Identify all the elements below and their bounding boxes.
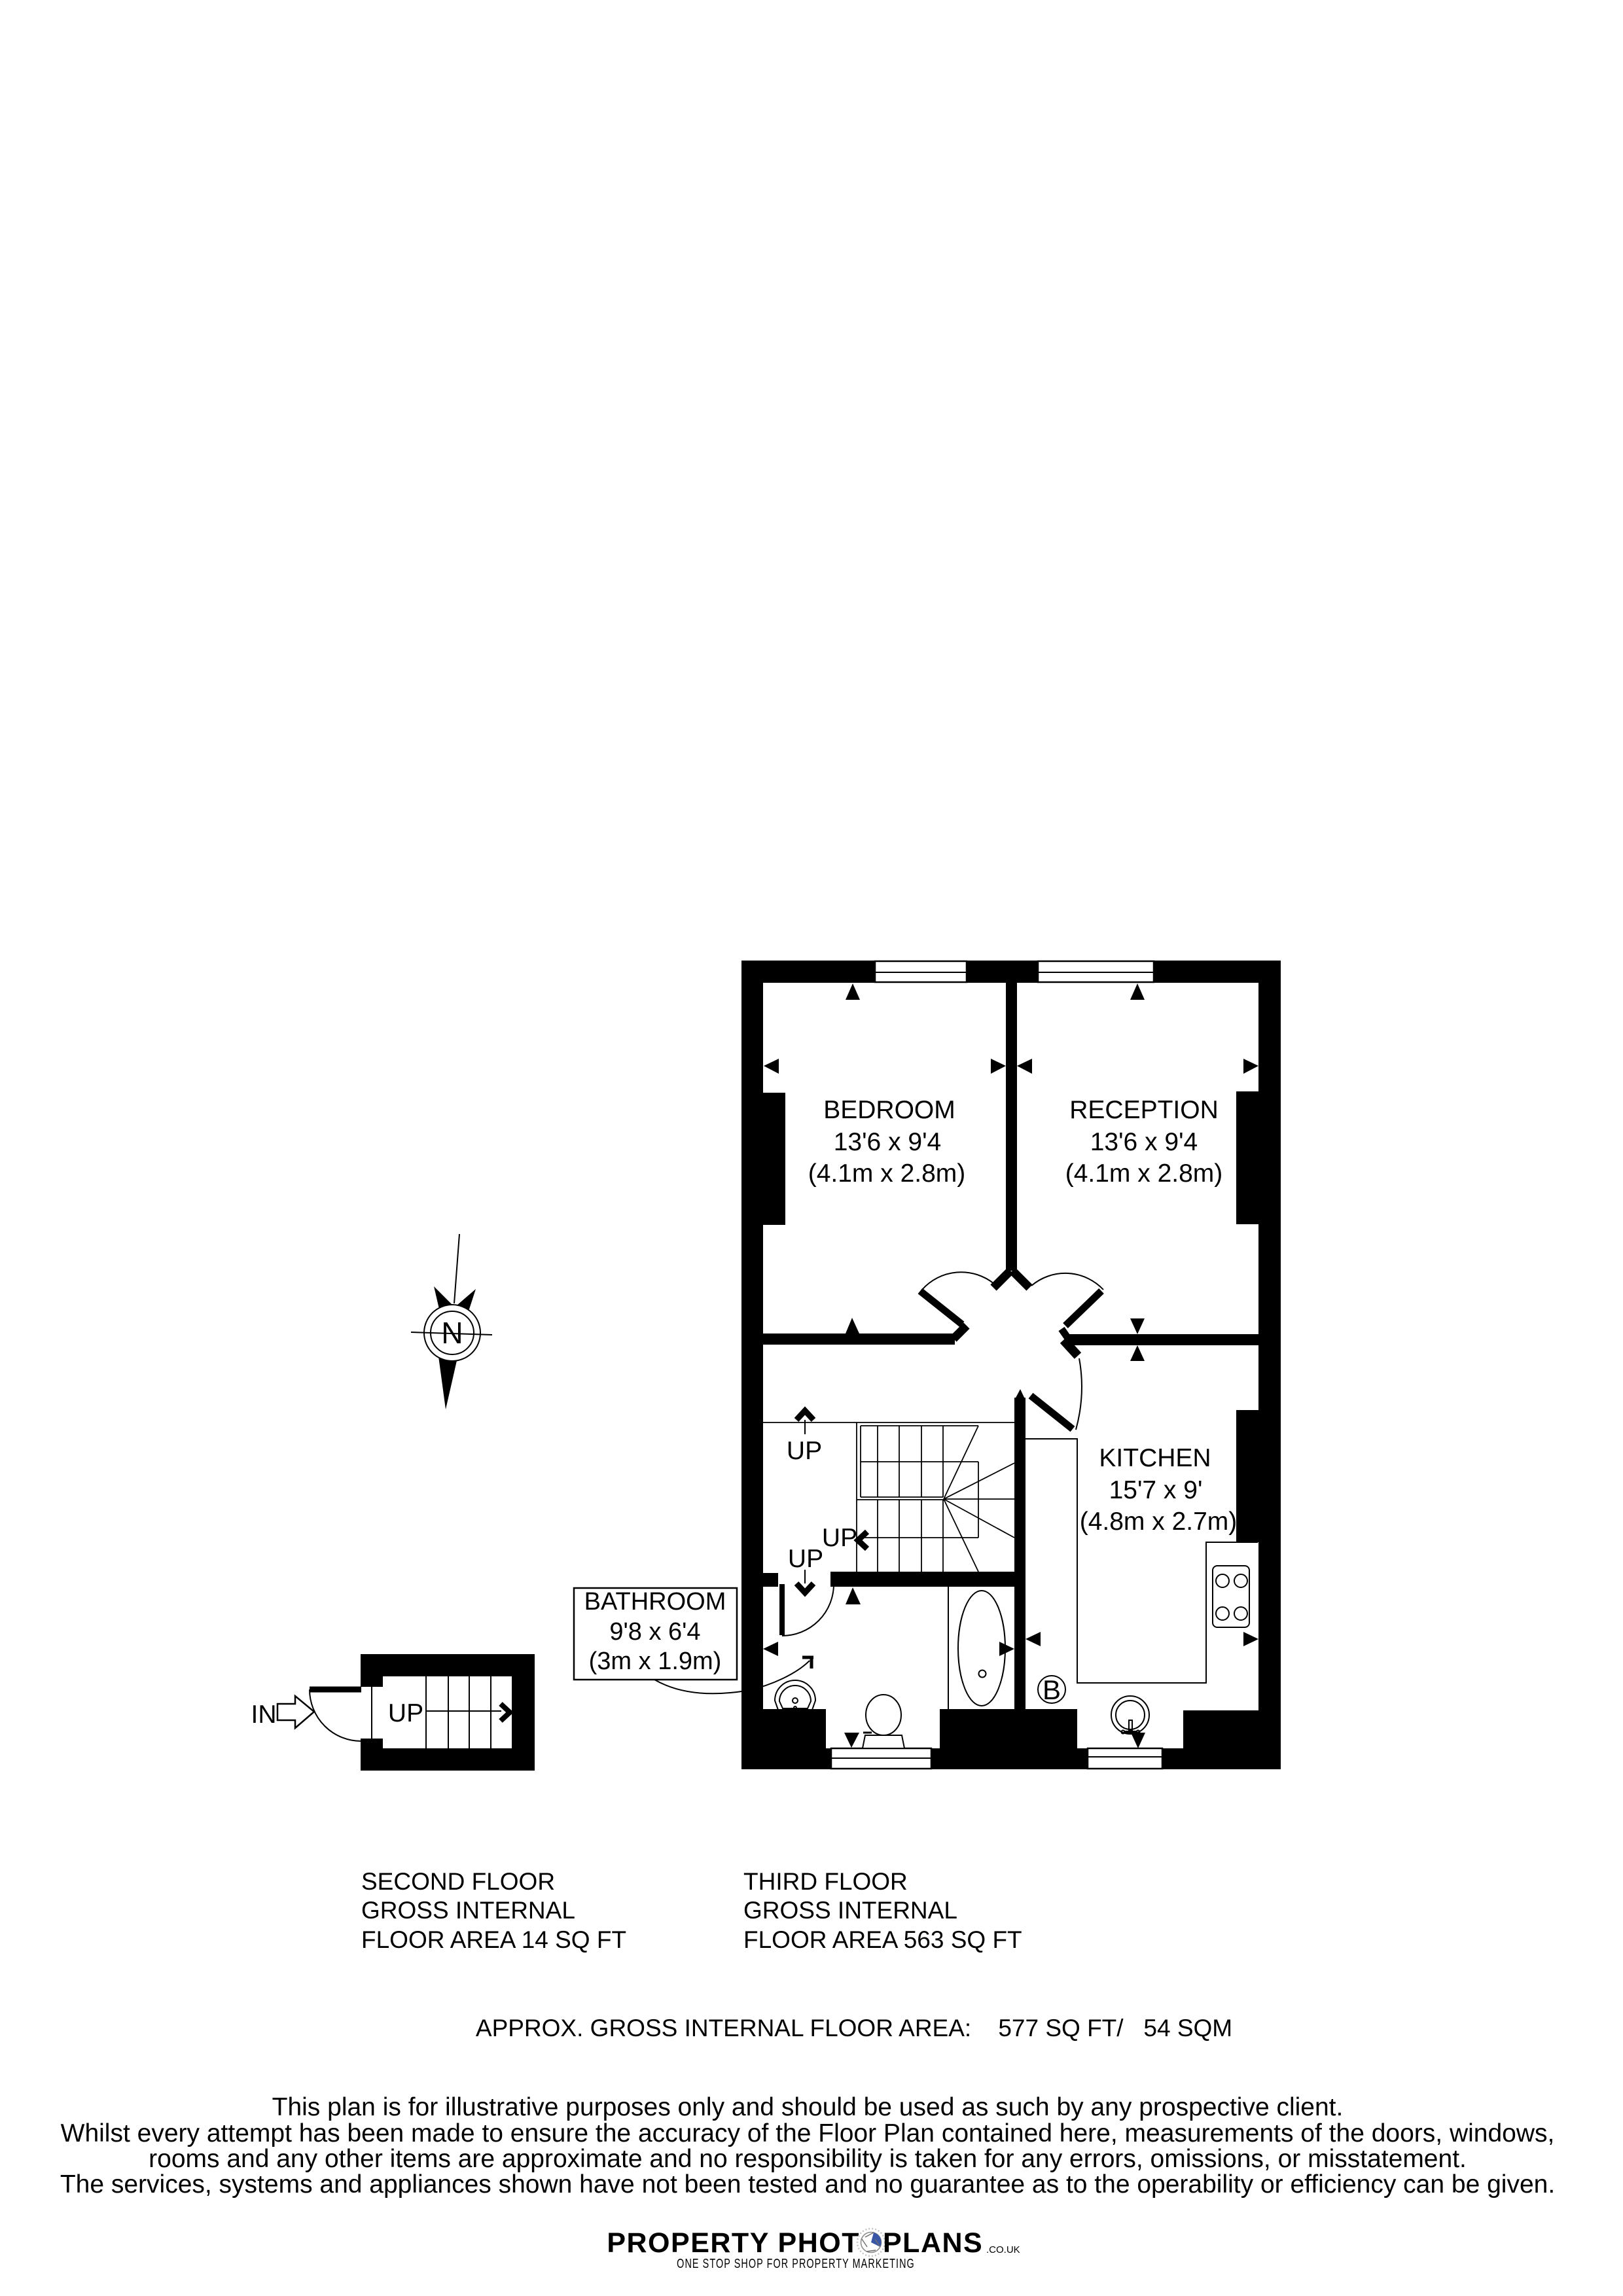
svg-text:BEDROOM: BEDROOM	[823, 1096, 955, 1124]
svg-text:rooms and any other items are: rooms and any other items are approximat…	[149, 2145, 1467, 2173]
svg-text:UP: UP	[788, 1545, 823, 1573]
svg-text:(4.1m x 2.8m): (4.1m x 2.8m)	[1065, 1159, 1223, 1188]
svg-text:Whilst every attempt has been: Whilst every attempt has been made to en…	[61, 2119, 1555, 2147]
svg-text:9'8 x 6'4: 9'8 x 6'4	[609, 1618, 700, 1646]
svg-text:FLOOR AREA 563 SQ FT: FLOOR AREA 563 SQ FT	[743, 1926, 1022, 1953]
svg-text:ONE STOP SHOP FOR PROPERTY MAR: ONE STOP SHOP FOR PROPERTY MARKETING	[677, 2256, 915, 2271]
svg-text:B: B	[1043, 1674, 1061, 1705]
svg-text:APPROX. GROSS INTERNAL FLOOR A: APPROX. GROSS INTERNAL FLOOR AREA: 577 S…	[476, 2015, 1232, 2041]
svg-text:The services, systems and appl: The services, systems and appliances sho…	[60, 2170, 1555, 2199]
svg-text:15'7 x 9': 15'7 x 9'	[1109, 1476, 1203, 1504]
svg-text:(4.1m x 2.8m): (4.1m x 2.8m)	[808, 1159, 966, 1188]
svg-text:FLOOR AREA 14 SQ FT: FLOOR AREA 14 SQ FT	[361, 1926, 626, 1953]
svg-text:SECOND FLOOR: SECOND FLOOR	[361, 1868, 555, 1895]
svg-text:.CO.UK: .CO.UK	[986, 2244, 1020, 2255]
svg-text:UP: UP	[388, 1699, 423, 1727]
svg-text:BATHROOM: BATHROOM	[584, 1588, 726, 1616]
svg-text:THIRD FLOOR: THIRD FLOOR	[743, 1868, 908, 1895]
svg-text:13'6 x 9'4: 13'6 x 9'4	[834, 1128, 942, 1156]
svg-text:13'6 x 9'4: 13'6 x 9'4	[1090, 1128, 1198, 1156]
svg-text:PLANS: PLANS	[883, 2227, 983, 2259]
svg-text:RECEPTION: RECEPTION	[1069, 1096, 1219, 1124]
svg-text:GROSS INTERNAL: GROSS INTERNAL	[361, 1897, 575, 1924]
svg-text:This plan is for illustrative: This plan is for illustrative purposes o…	[272, 2093, 1344, 2121]
svg-text:N: N	[441, 1316, 463, 1350]
svg-text:PROPERTY PHOT: PROPERTY PHOT	[607, 2227, 860, 2259]
svg-text:UP: UP	[822, 1524, 857, 1552]
svg-text:KITCHEN: KITCHEN	[1099, 1444, 1211, 1472]
svg-text:UP: UP	[787, 1437, 822, 1465]
svg-text:(3m x 1.9m): (3m x 1.9m)	[589, 1648, 722, 1675]
svg-text:(4.8m x 2.7m): (4.8m x 2.7m)	[1080, 1508, 1238, 1536]
svg-text:GROSS INTERNAL: GROSS INTERNAL	[743, 1897, 957, 1924]
svg-text:IN: IN	[251, 1701, 277, 1729]
